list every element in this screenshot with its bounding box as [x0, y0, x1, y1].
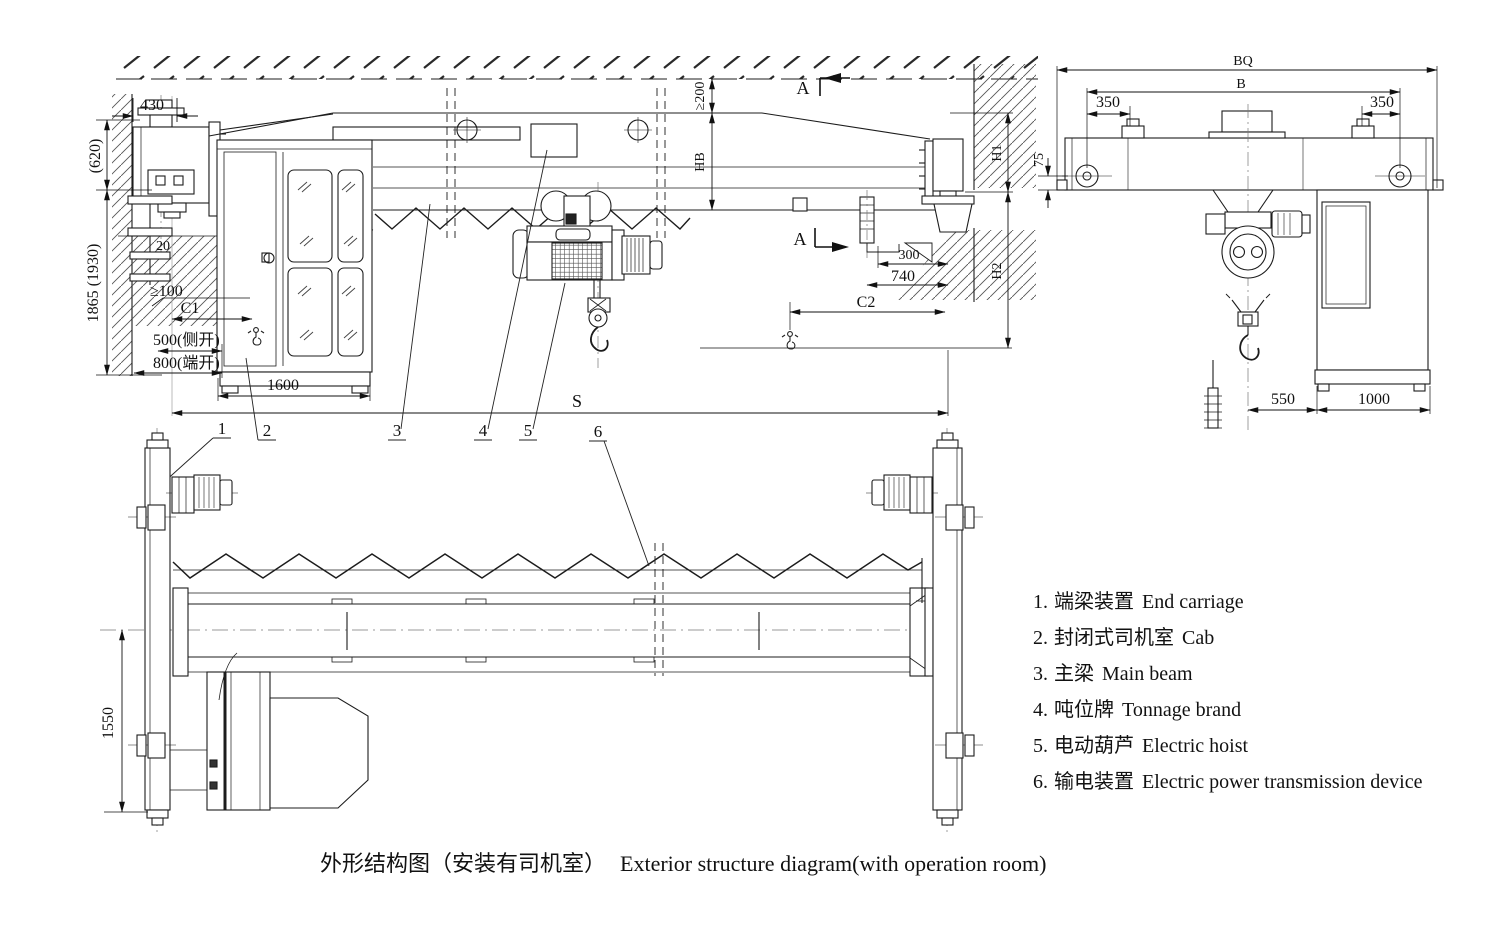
callout-4: 4 [479, 421, 488, 440]
legend-en: Electric power transmission device [1142, 771, 1422, 793]
crane-structure-diagram: 430 (620) 1865 (1930) 20 ≥100 C1 500(侧开)… [0, 0, 1510, 931]
callout-3: 3 [393, 421, 402, 440]
legend-zh: 输电装置 [1054, 771, 1134, 793]
cab-side [1315, 190, 1430, 391]
dim-ge200: ≥200 [693, 82, 708, 111]
legend-item-tonnage-brand: 4.吨位牌Tonnage brand [1033, 692, 1422, 728]
legend-en: Main beam [1102, 663, 1193, 685]
plan-view [100, 428, 983, 832]
parts-legend: 1.端梁装置End carriage 2.封闭式司机室Cab 3.主梁Main … [1033, 584, 1422, 800]
travel-motor-right [866, 475, 938, 513]
legend-num: 5. [1033, 735, 1048, 757]
legend-zh: 电动葫芦 [1054, 735, 1134, 757]
cab-front [217, 140, 372, 393]
buffer-right [1352, 126, 1374, 138]
legend-item-power-transmission: 6.输电装置Electric power transmission device [1033, 764, 1422, 800]
caption-en: Exterior structure diagram(with operatio… [620, 851, 1046, 876]
legend-en: Tonnage brand [1122, 699, 1241, 721]
legend-en: Electric hoist [1142, 735, 1248, 757]
dim-1600: 1600 [267, 377, 299, 394]
dim-800-end: 800(端开) [153, 354, 220, 372]
dim-550: 550 [1271, 391, 1295, 408]
dim-740: 740 [891, 268, 915, 285]
cab-plan [170, 653, 368, 810]
hook-front [588, 280, 610, 351]
side-view [1038, 66, 1443, 432]
legend-en: End carriage [1142, 591, 1244, 613]
legend-en: Cab [1182, 627, 1214, 649]
dim-h2: H2 [990, 262, 1005, 279]
section-a-top: A [797, 78, 810, 98]
legend-num: 1. [1033, 591, 1048, 613]
legend-zh: 吨位牌 [1054, 699, 1114, 721]
end-carriage-right-front [897, 64, 1036, 302]
dim-c1: C1 [181, 300, 200, 317]
legend-zh: 主梁 [1054, 663, 1094, 685]
dim-1550: 1550 [100, 707, 117, 739]
legend-zh: 封闭式司机室 [1054, 627, 1174, 649]
dim-ge100: ≥100 [150, 283, 183, 300]
dim-h1: H1 [990, 144, 1005, 161]
callout-1: 1 [218, 419, 227, 438]
buffer-left [1122, 126, 1144, 138]
dim-s: S [572, 391, 582, 411]
end-carriage-right-plan [866, 428, 983, 832]
legend-item-cab: 2.封闭式司机室Cab [1033, 620, 1422, 656]
dim-c2: C2 [857, 294, 876, 311]
caption-zh: 外形结构图（安装有司机室） [320, 851, 606, 876]
legend-item-main-beam: 3.主梁Main beam [1033, 656, 1422, 692]
callout-2: 2 [263, 421, 272, 440]
dim-1000: 1000 [1358, 391, 1390, 408]
tonnage-brand [531, 124, 577, 157]
legend-item-electric-hoist: 5.电动葫芦Electric hoist [1033, 728, 1422, 764]
legend-num: 4. [1033, 699, 1048, 721]
diagram-caption: 外形结构图（安装有司机室）Exterior structure diagram(… [320, 846, 1046, 878]
dim-hb: HB [693, 152, 708, 171]
dim-b: B [1236, 77, 1245, 92]
legend-item-end-carriage: 1.端梁装置End carriage [1033, 584, 1422, 620]
dim-350-left: 350 [1096, 94, 1120, 111]
dim-620: (620) [87, 139, 104, 174]
conductor-side [1204, 360, 1222, 428]
dim-1865-1930: 1865 (1930) [85, 244, 102, 323]
dim-20: 20 [156, 239, 170, 254]
callout-5: 5 [524, 421, 533, 440]
legend-num: 3. [1033, 663, 1048, 685]
dim-75: 75 [1032, 153, 1047, 167]
dim-bq: BQ [1233, 54, 1252, 69]
dim-500-side: 500(侧开) [153, 331, 220, 349]
travel-motor-left [166, 475, 238, 513]
dim-350-right: 350 [1370, 94, 1394, 111]
dim-430: 430 [140, 97, 164, 114]
legend-num: 2. [1033, 627, 1048, 649]
section-a-bottom: A [794, 229, 807, 249]
legend-zh: 端梁装置 [1054, 591, 1134, 613]
ceiling-hatch [116, 56, 1038, 79]
callout-6: 6 [594, 422, 603, 441]
festoon-wire-plan [173, 554, 928, 603]
legend-num: 6. [1033, 771, 1048, 793]
end-carriage-side [1057, 111, 1443, 190]
dim-300: 300 [899, 248, 920, 263]
